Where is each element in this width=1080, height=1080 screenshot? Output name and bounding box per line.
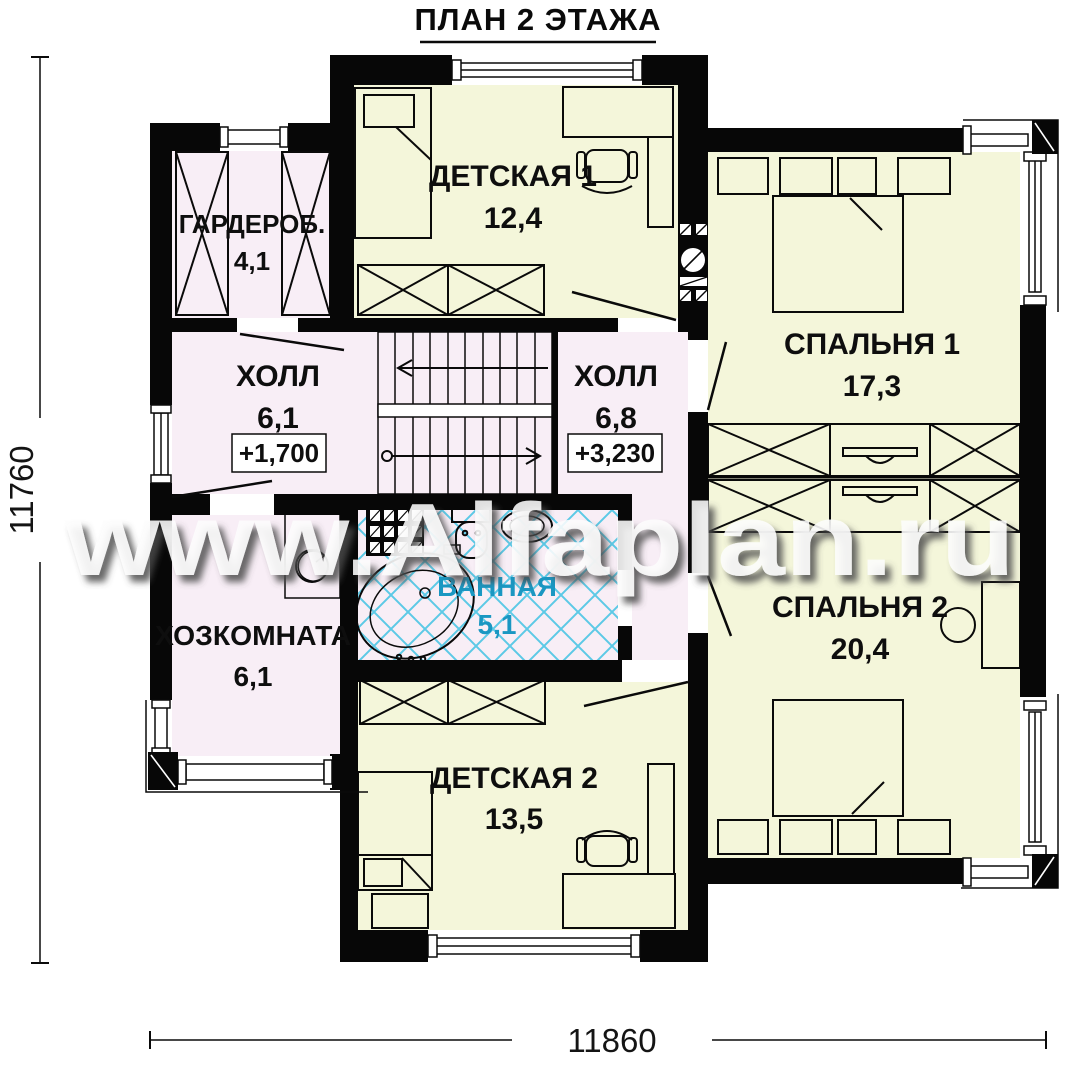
label-wardrobe-name: ГАРДЕРОБ. <box>179 209 326 239</box>
dimension-bottom: 11860 <box>150 1022 1046 1059</box>
label-utility-area: 6,1 <box>234 661 273 692</box>
floor-plan-drawing: +1,700 +3,230 ДЕТСКАЯ 1 12,4 ГАРДЕРОБ. 4… <box>0 0 1080 1080</box>
window-garderob <box>220 123 288 151</box>
label-hall2-name: ХОЛЛ <box>574 360 658 393</box>
label-hall2-area: 6,8 <box>595 402 637 435</box>
label-hall1-area: 6,1 <box>257 402 299 435</box>
dimension-left-value: 11760 <box>3 445 40 534</box>
label-bedroom1-name: СПАЛЬНЯ 1 <box>784 328 960 361</box>
label-hall1-name: ХОЛЛ <box>236 360 320 393</box>
label-kids2-area: 13,5 <box>485 803 543 836</box>
watermark-text: www.Alfaplan.ru <box>64 482 1015 597</box>
label-bedroom1-area: 17,3 <box>843 370 901 403</box>
wardrobe-floor <box>172 151 330 332</box>
label-kids1-area: 12,4 <box>484 202 543 235</box>
elevation-hall1: +1,700 <box>239 438 319 468</box>
label-wardrobe-area: 4,1 <box>234 246 270 276</box>
bedroom1-floor <box>705 152 1020 478</box>
label-bedroom2-area: 20,4 <box>831 633 890 666</box>
label-utility-name: ХОЗКОМНАТА <box>155 620 351 651</box>
label-kids2-name: ДЕТСКАЯ 2 <box>430 762 598 795</box>
window-hall <box>150 405 172 483</box>
label-kids1-name: ДЕТСКАЯ 1 <box>429 160 597 193</box>
page-title: ПЛАН 2 ЭТАЖА <box>414 2 661 37</box>
window-kids1 <box>452 55 642 85</box>
label-bath-area: 5,1 <box>478 609 517 640</box>
dimension-bottom-value: 11860 <box>567 1022 656 1059</box>
title-block: ПЛАН 2 ЭТАЖА <box>414 2 661 42</box>
floor-plan-page: +1,700 +3,230 ДЕТСКАЯ 1 12,4 ГАРДЕРОБ. 4… <box>0 0 1080 1080</box>
window-kids2 <box>428 930 640 962</box>
dimension-left: 11760 <box>3 57 49 963</box>
stair-landing <box>378 404 552 417</box>
elevation-hall2: +3,230 <box>575 438 655 468</box>
